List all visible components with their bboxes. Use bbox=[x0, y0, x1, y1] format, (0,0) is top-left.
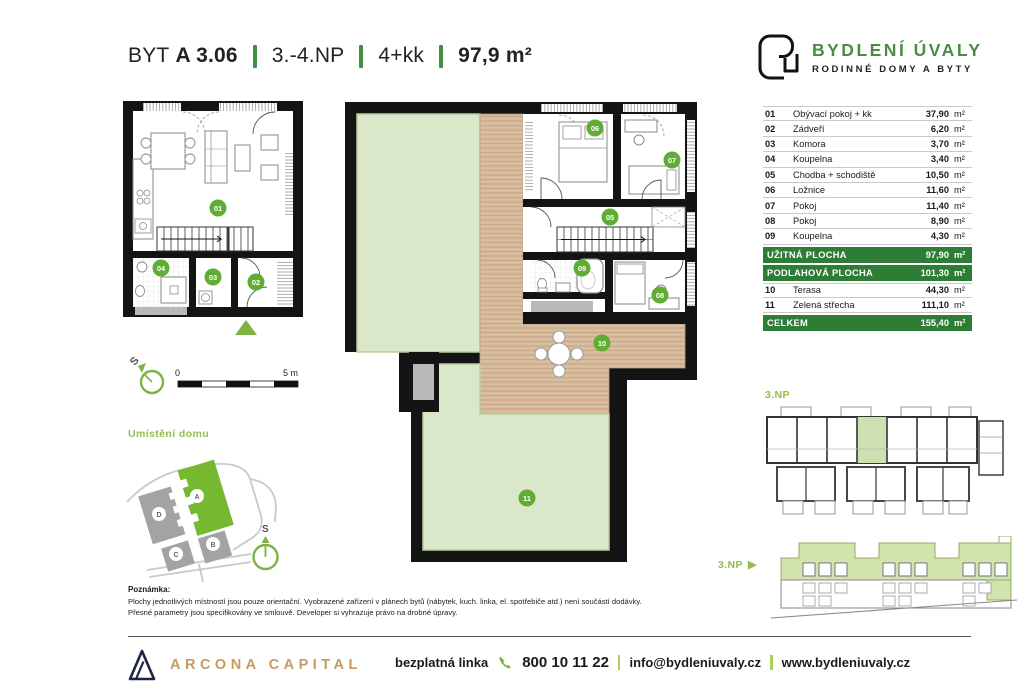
unit-title: BYT A 3.06 bbox=[128, 44, 238, 68]
brand-name: BYDLENÍ ÚVALY bbox=[812, 40, 983, 61]
chair bbox=[634, 135, 644, 145]
room-badge-07: 07 bbox=[668, 156, 676, 165]
room-badge-06: 06 bbox=[591, 124, 599, 133]
table-row: 06Ložnice11,60m² bbox=[763, 183, 972, 198]
building-badge-a: A bbox=[194, 494, 199, 501]
wall bbox=[523, 312, 685, 324]
usable-area-row: UŽITNÁ PLOCHA97,90m² bbox=[763, 247, 972, 263]
toilet-tank bbox=[538, 288, 547, 292]
arcona-logo: ARCONA CAPITAL bbox=[126, 648, 362, 682]
phone-icon bbox=[497, 655, 513, 671]
wall bbox=[133, 251, 293, 258]
brand-tagline: RODINNÉ DOMY A BYTY bbox=[812, 64, 983, 75]
separator-bar bbox=[618, 655, 621, 670]
website-url: www.bydleniuvaly.cz bbox=[782, 655, 911, 670]
scale-segment bbox=[178, 381, 202, 387]
window bbox=[687, 120, 695, 192]
table-row: 03Komora3,70m² bbox=[763, 137, 972, 152]
room-badge-02: 02 bbox=[252, 278, 260, 287]
building-annex bbox=[979, 421, 1003, 475]
arcona-name: ARCONA CAPITAL bbox=[170, 657, 362, 673]
room-area-table: 01Obývací pokoj + kk37,90m² 02Zádveří6,2… bbox=[763, 106, 972, 331]
wall bbox=[523, 252, 685, 260]
scale-end-label: 5 m bbox=[283, 368, 298, 378]
separator-bar bbox=[439, 45, 443, 68]
note-block: Poznámka: Plochy jednotlivých místností … bbox=[128, 585, 828, 618]
scale-segment bbox=[226, 381, 250, 387]
pillow bbox=[617, 264, 643, 274]
scale-start-label: 0 bbox=[175, 368, 180, 378]
wall bbox=[231, 258, 238, 307]
site-plan: A B C D S bbox=[123, 444, 318, 584]
building-badge-b: B bbox=[210, 542, 215, 549]
room-badge-05: 05 bbox=[606, 213, 614, 222]
unit-number: A 3.06 bbox=[176, 44, 238, 67]
green-roof-upper bbox=[357, 114, 480, 352]
window bbox=[219, 103, 277, 111]
doormat bbox=[531, 301, 593, 312]
separator-bar bbox=[359, 45, 363, 68]
window bbox=[525, 122, 533, 192]
washbasin bbox=[137, 262, 147, 272]
building-badge-c: C bbox=[173, 552, 178, 559]
table-row: 01Obývací pokoj + kk37,90m² bbox=[763, 106, 972, 121]
separator-bar bbox=[770, 655, 773, 670]
window bbox=[541, 104, 603, 112]
armchair bbox=[261, 165, 278, 180]
table-row: 02Zádveří6,20m² bbox=[763, 121, 972, 136]
wall bbox=[189, 258, 196, 307]
brand-mark-icon bbox=[756, 33, 802, 81]
arrow-right-icon: ▶ bbox=[748, 558, 757, 571]
roof-detail bbox=[999, 536, 1011, 543]
room-badge-04: 04 bbox=[157, 264, 166, 273]
room-badge-03: 03 bbox=[209, 273, 217, 282]
chair bbox=[185, 138, 195, 148]
chair bbox=[185, 154, 195, 164]
room-badge-09: 09 bbox=[578, 264, 586, 273]
terrace-table bbox=[548, 343, 570, 365]
arcona-triangle-icon bbox=[126, 648, 158, 682]
entrance-marker-triangle bbox=[235, 320, 257, 335]
table-row: 11Zelená střecha111,10m² bbox=[763, 298, 972, 313]
window bbox=[687, 262, 695, 306]
sofa bbox=[205, 131, 227, 183]
disposition-label: 4+kk bbox=[378, 44, 424, 68]
coffee-table bbox=[235, 145, 250, 171]
wall bbox=[613, 114, 621, 204]
footer-contacts: bezplatná linka 800 10 11 22 info@bydlen… bbox=[395, 654, 972, 671]
table-row: 10Terasa44,30m² bbox=[763, 283, 972, 298]
window bbox=[285, 151, 293, 215]
separator-bar bbox=[253, 45, 257, 68]
desk bbox=[625, 120, 657, 132]
terrace-chair bbox=[553, 365, 565, 377]
terrace-chair bbox=[535, 348, 547, 360]
note-line: Přesné parametry jsou specifikovány ve s… bbox=[128, 607, 828, 618]
email-address: info@bydleniuvaly.cz bbox=[629, 655, 761, 670]
lower-floor-plan: 01 04 03 02 bbox=[123, 101, 308, 341]
wall bbox=[523, 199, 685, 207]
elevation-label: 3.NP▶ bbox=[718, 558, 757, 571]
compass-needle-icon bbox=[262, 536, 270, 543]
site-plan-title: Umístění domu bbox=[128, 428, 209, 440]
window bbox=[623, 104, 677, 112]
table-row: 09Koupelna4,30m² bbox=[763, 229, 972, 244]
main-floor-plan: 06 07 05 09 08 10 11 bbox=[345, 102, 705, 582]
room-badge-08: 08 bbox=[656, 291, 664, 300]
floor-area-row: PODLAHOVÁ PLOCHA101,30m² bbox=[763, 265, 972, 281]
table-row: 07Pokoj11,40m² bbox=[763, 198, 972, 213]
total-area-row: CELKEM155,40m² bbox=[763, 315, 972, 331]
page-title: BYT A 3.06 3.-4.NP 4+kk 97,9 m² bbox=[128, 44, 532, 68]
phone-number: 800 10 11 22 bbox=[522, 654, 609, 671]
floor-overview-label: 3.NP bbox=[765, 389, 790, 401]
room-badge-10: 10 bbox=[598, 339, 606, 348]
highlighted-floor-mass bbox=[781, 543, 1011, 580]
area-label: 97,9 m² bbox=[458, 44, 532, 68]
building-badge-d: D bbox=[156, 512, 161, 519]
brand-logo: BYDLENÍ ÚVALY RODINNÉ DOMY A BYTY bbox=[756, 33, 983, 81]
phone-label: bezplatná linka bbox=[395, 655, 488, 670]
armchair bbox=[261, 135, 278, 150]
window bbox=[143, 103, 181, 111]
wardrobe bbox=[277, 261, 293, 305]
floor-overview-plan bbox=[763, 403, 1015, 521]
footer-divider bbox=[128, 636, 971, 637]
table-row: 04Koupelna3,40m² bbox=[763, 152, 972, 167]
flyer-page: BYT A 3.06 3.-4.NP 4+kk 97,9 m² BYDLENÍ … bbox=[0, 0, 1024, 700]
wall bbox=[605, 252, 613, 312]
chair bbox=[141, 154, 151, 164]
north-label: S bbox=[262, 524, 269, 535]
room-badge-11: 11 bbox=[523, 494, 531, 503]
chair bbox=[141, 138, 151, 148]
highlighted-unit bbox=[857, 417, 887, 463]
terrace-chair bbox=[553, 331, 565, 343]
dining-table bbox=[151, 133, 185, 169]
pillow bbox=[563, 126, 581, 139]
compass-and-scale: S 0 5 m bbox=[123, 352, 313, 400]
floor-label: 3.-4.NP bbox=[272, 44, 345, 68]
kitchen-sink bbox=[135, 219, 151, 233]
terrace-chair bbox=[571, 348, 583, 360]
note-line: Plochy jednotlivých místností jsou pouze… bbox=[128, 596, 828, 607]
balconies bbox=[783, 501, 967, 514]
chimney bbox=[413, 364, 434, 400]
wall bbox=[523, 292, 613, 299]
scale-segment bbox=[274, 381, 298, 387]
window bbox=[687, 212, 695, 248]
compass-needle-line bbox=[144, 374, 152, 382]
toilet bbox=[136, 286, 145, 297]
washing-machine bbox=[199, 291, 212, 304]
table-row: 08Pokoj8,90m² bbox=[763, 214, 972, 229]
sink bbox=[556, 283, 570, 292]
shower-drain bbox=[170, 286, 178, 294]
note-title: Poznámka: bbox=[128, 585, 828, 594]
doormat bbox=[135, 307, 187, 315]
pillow bbox=[667, 170, 676, 190]
room-badge-01: 01 bbox=[214, 204, 222, 213]
table-row: 05Chodba + schodiště10,50m² bbox=[763, 168, 972, 183]
